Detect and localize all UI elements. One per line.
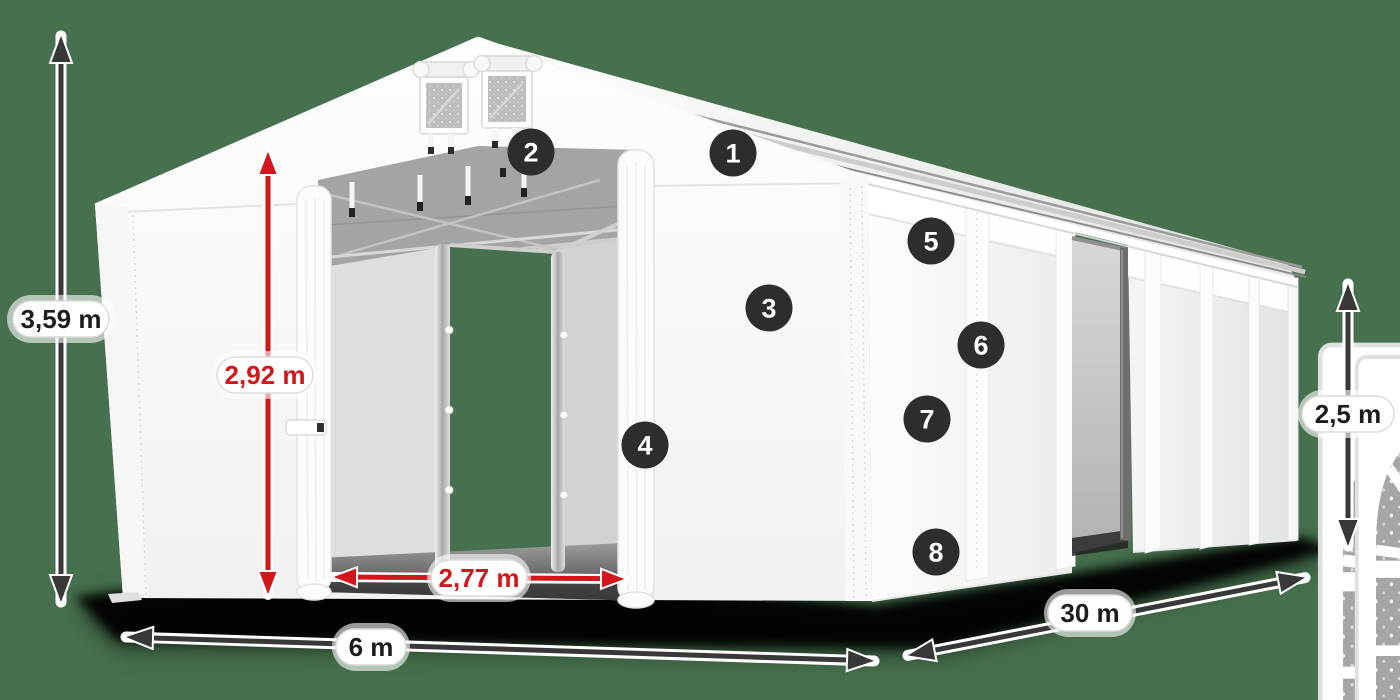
wall-pole <box>1200 258 1213 549</box>
svg-text:5: 5 <box>923 227 938 257</box>
svg-text:8: 8 <box>928 538 943 568</box>
svg-text:2,5 m: 2,5 m <box>1315 399 1382 429</box>
dim-label-entrance-height: 2,92 m <box>213 351 317 399</box>
svg-text:7: 7 <box>919 405 934 435</box>
svg-text:3,59 m: 3,59 m <box>21 304 102 334</box>
svg-text:2,77 m: 2,77 m <box>439 563 520 593</box>
wall-pole <box>966 200 989 581</box>
rear-corner-pole <box>1288 278 1298 540</box>
interior-side-wall <box>318 248 437 590</box>
svg-text:3: 3 <box>761 294 776 324</box>
module-connector <box>1072 236 1131 556</box>
svg-text:4: 4 <box>637 431 652 461</box>
svg-text:1: 1 <box>725 139 740 169</box>
svg-text:6 m: 6 m <box>349 632 394 662</box>
dim-label-side-height: 2,5 m <box>1298 390 1398 438</box>
dim-label-length: 30 m <box>1044 589 1136 637</box>
marker-3[interactable]: 3 <box>746 285 793 332</box>
middle-doorway-open <box>450 243 556 558</box>
wall-pole <box>1145 246 1161 553</box>
dim-label-total-height: 3,59 m <box>7 295 115 343</box>
rolled-door-right <box>618 150 654 608</box>
dim-label-width: 6 m <box>332 623 410 671</box>
marker-6[interactable]: 6 <box>958 322 1005 369</box>
marker-8[interactable]: 8 <box>913 529 960 576</box>
marker-4[interactable]: 4 <box>622 422 669 469</box>
svg-text:2: 2 <box>523 138 538 168</box>
svg-text:30 m: 30 m <box>1060 598 1119 628</box>
dim-label-entrance-width: 2,77 m <box>427 554 531 602</box>
marker-1[interactable]: 1 <box>710 130 757 177</box>
tent-product-diagram: 3,59 m 2,92 m 2,77 m <box>0 0 1400 700</box>
svg-text:2,92 m: 2,92 m <box>225 360 306 390</box>
wall-pole <box>1249 269 1259 545</box>
marker-7[interactable]: 7 <box>904 396 951 443</box>
marker-5[interactable]: 5 <box>908 218 955 265</box>
door-handle <box>286 420 326 435</box>
marker-2[interactable]: 2 <box>508 129 555 176</box>
svg-text:6: 6 <box>973 331 988 361</box>
